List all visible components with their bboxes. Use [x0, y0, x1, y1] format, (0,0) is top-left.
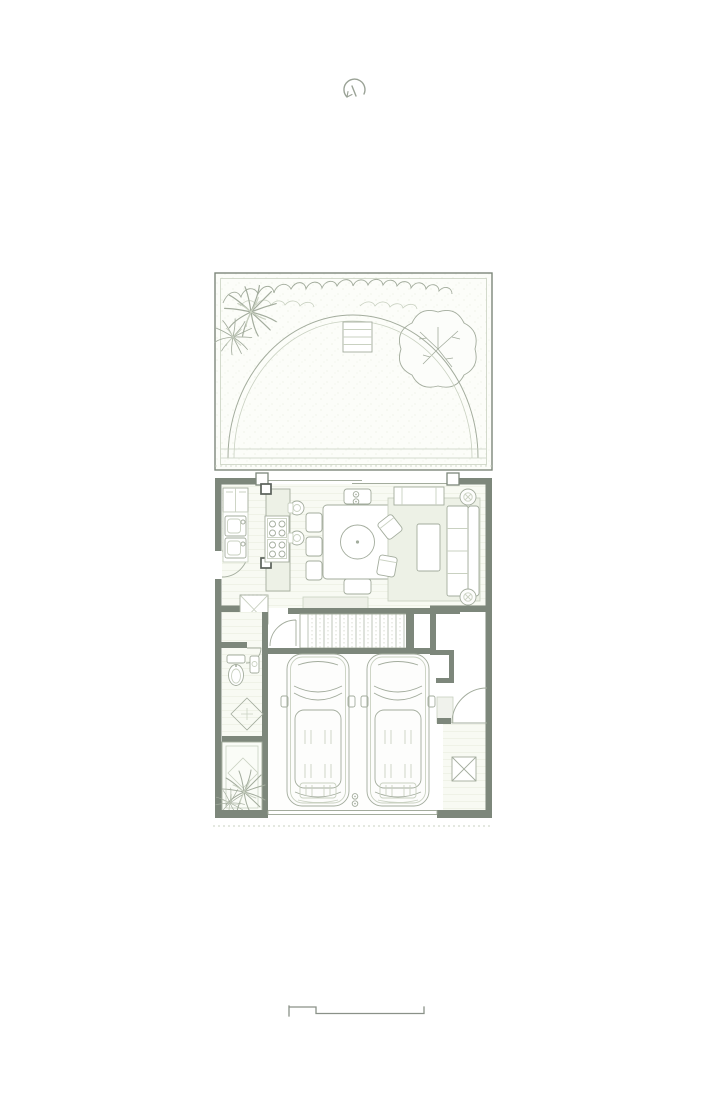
front-wall [437, 810, 492, 818]
north-arrow-icon [344, 79, 365, 97]
toilet [227, 655, 245, 686]
console [394, 487, 444, 505]
sliding-glass-door [264, 481, 455, 484]
cooktop [265, 516, 289, 562]
wash-basin [250, 656, 259, 673]
dining-chair [306, 513, 322, 532]
car [361, 654, 435, 806]
armchair [376, 555, 397, 578]
column [447, 473, 459, 485]
living-room [376, 487, 480, 605]
scale-bar [289, 1006, 424, 1016]
floor-plan-sheet [0, 0, 713, 1100]
car [281, 654, 355, 806]
island-post [261, 484, 271, 494]
niche-wall [436, 650, 454, 683]
garden [210, 273, 492, 470]
potted-plant-icon [460, 489, 476, 505]
potted-plant-icon [460, 589, 476, 605]
dining-chair [306, 561, 322, 580]
floor-plan-drawing [0, 0, 713, 1100]
dining-chair [306, 537, 322, 556]
dining-chair [344, 579, 371, 594]
stair-door [270, 620, 296, 646]
living-level [215, 473, 492, 624]
garden-steps [343, 322, 372, 352]
x-box [452, 757, 476, 781]
garage-threshold [268, 811, 437, 815]
coffee-table [417, 524, 440, 571]
sofa [447, 506, 479, 596]
entry-door [452, 688, 487, 723]
front-wall [215, 810, 268, 818]
